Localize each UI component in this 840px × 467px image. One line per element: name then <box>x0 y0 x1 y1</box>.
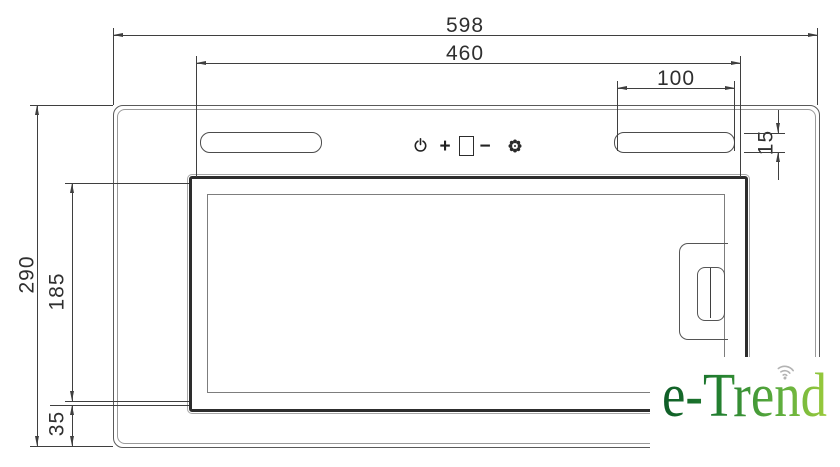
dim-label-total-height: 290 <box>17 245 38 305</box>
dim-label-panel-width: 460 <box>435 43 495 64</box>
dim-arrow <box>196 61 206 65</box>
dim-arrow <box>70 436 74 446</box>
dim-arrow <box>776 123 780 133</box>
extension-line <box>113 28 114 105</box>
filter-handle-grip-line <box>710 268 711 318</box>
display-window-icon <box>459 136 474 156</box>
extension-line <box>196 56 197 177</box>
extension-line <box>734 81 735 151</box>
dim-arrow <box>70 391 74 401</box>
extension-line <box>65 183 189 184</box>
dim-label-total-width: 598 <box>435 15 495 36</box>
dim-arrow <box>776 152 780 162</box>
filter-handle-grip <box>697 267 725 321</box>
extension-line <box>65 401 189 402</box>
extension-line <box>50 446 113 447</box>
dim-label-light-height: 15 <box>756 113 777 173</box>
dimension-drawing: + − 598 460 100 15 290 185 <box>0 0 840 467</box>
dim-arrow <box>70 405 74 415</box>
extension-line <box>817 28 818 105</box>
dim-label-panel-height: 185 <box>47 262 68 322</box>
logo-area: e-Trend <box>650 357 840 467</box>
dim-arrow <box>35 436 39 446</box>
power-icon <box>413 138 428 153</box>
dim-line <box>196 63 741 64</box>
dim-label-bottom-height: 35 <box>47 394 68 454</box>
dim-line <box>617 88 735 89</box>
extension-line <box>617 81 618 151</box>
dim-arrow <box>113 33 123 37</box>
dim-line <box>37 105 38 446</box>
extension-line <box>50 405 189 406</box>
extension-line <box>740 56 741 177</box>
light-icon <box>508 139 522 153</box>
dim-arrow <box>35 105 39 115</box>
extension-line <box>30 105 113 106</box>
brand-logo: e-Trend <box>662 365 827 427</box>
dim-arrow <box>70 183 74 193</box>
glass-panel-inner-edge <box>207 194 725 393</box>
light-slot-right <box>614 132 735 153</box>
dim-line <box>113 35 818 36</box>
dim-line <box>72 183 73 401</box>
dim-label-light-width: 100 <box>646 68 706 89</box>
extension-line <box>744 133 785 134</box>
wifi-icon <box>770 357 800 381</box>
dim-arrow <box>617 86 627 90</box>
minus-button: − <box>477 137 493 156</box>
plus-button: + <box>437 137 453 156</box>
light-slot-left <box>200 132 322 153</box>
